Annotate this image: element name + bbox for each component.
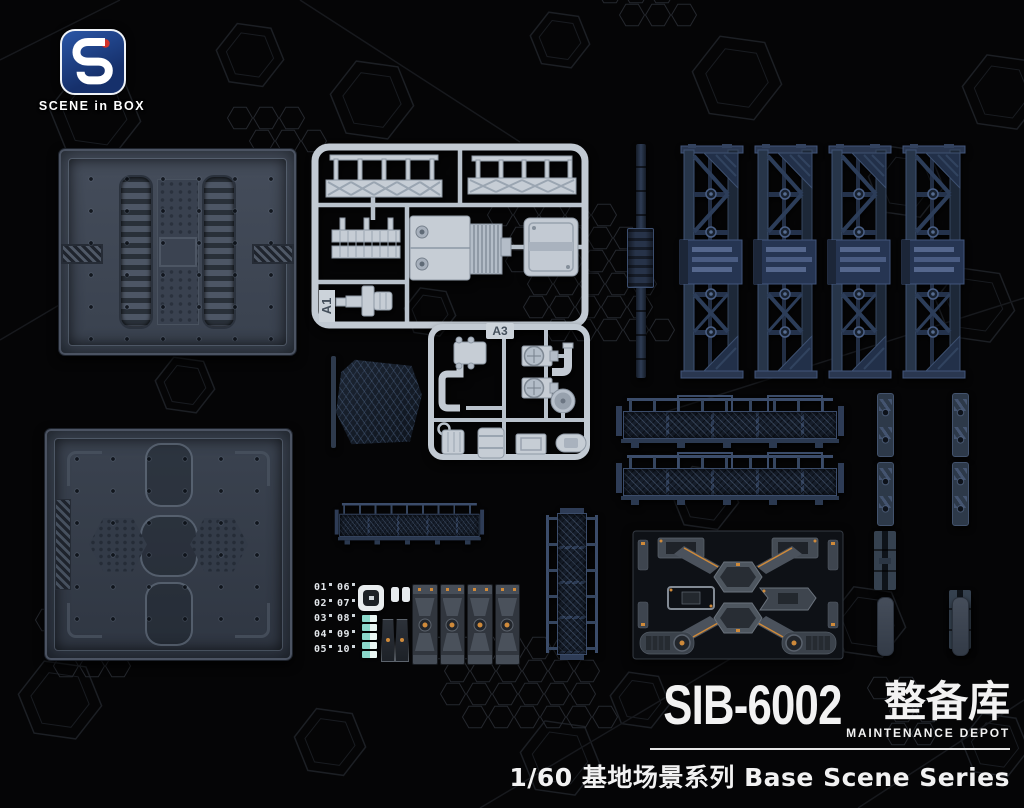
decal-chip	[329, 630, 332, 633]
model-name-wrap: 整备库 MAINTENANCE DEPOT	[846, 680, 1010, 740]
decal-number-column-left: 01 02 03 04 05	[314, 582, 332, 656]
catwalk-bracket	[677, 395, 733, 411]
part-pipe-manifold	[442, 337, 486, 408]
brand-logo-icon	[62, 31, 124, 93]
catwalk-endcap	[560, 508, 584, 513]
decal-number: 10	[337, 644, 350, 655]
decal-mech-panel	[467, 584, 493, 665]
catwalk-bracket	[677, 452, 733, 468]
truss-tower-2	[752, 144, 820, 380]
decal-number: 01	[314, 582, 327, 593]
decal-number: 02	[314, 598, 327, 609]
rubber-pad	[952, 597, 969, 656]
part-kettle	[439, 424, 465, 455]
mounting-strip	[952, 393, 969, 457]
h-connector	[874, 531, 896, 590]
brand-logo	[60, 29, 126, 95]
decal-chip	[352, 599, 355, 602]
base-plate-b	[44, 428, 293, 661]
mounting-strip	[877, 462, 894, 526]
catwalk-bracket	[767, 452, 823, 468]
logo-sib-monogram	[77, 42, 109, 80]
decal-hatch-square	[358, 585, 384, 611]
catwalk-endcap	[838, 463, 844, 493]
catwalk-endcap	[838, 406, 844, 436]
decal-number: 09	[337, 629, 350, 640]
part-machine-block	[410, 216, 511, 280]
divider-line	[650, 748, 1010, 750]
sprue-a1-label: A1	[319, 298, 334, 315]
part-box	[516, 434, 546, 454]
truss-tower-4	[900, 144, 968, 380]
decal-teal-strip	[362, 651, 377, 658]
part-spindle	[336, 286, 392, 316]
decal-number: 06	[337, 582, 350, 593]
catwalk-endcap	[480, 510, 484, 535]
decal-number: 05	[314, 644, 327, 655]
catwalk-endcap	[560, 655, 584, 660]
pillar-mid-block	[627, 228, 654, 288]
decal-door-panel	[381, 619, 395, 662]
mounting-strip	[952, 462, 969, 526]
decal-orange-orb	[418, 618, 431, 631]
painted-floor-panel	[632, 530, 844, 660]
catwalk-feet	[631, 443, 829, 448]
decal-number-column-right: 06 07 08 09 10	[337, 582, 355, 656]
part-railing-long-1	[326, 155, 442, 197]
catwalk-long-1	[621, 398, 839, 450]
sprue-a1: A1	[310, 142, 590, 330]
sprue-a3-label: A3	[492, 324, 508, 338]
decal-chip	[352, 583, 355, 586]
catwalk-endcap	[616, 406, 622, 436]
series-line: 1/60 基地场景系列 Base Scene Series	[509, 758, 1010, 794]
decal-mech-panel	[495, 584, 521, 665]
catwalk-long-2	[621, 455, 839, 507]
catwalk-endcap	[335, 510, 339, 535]
catwalk-mesh-deck	[623, 468, 837, 496]
catwalk-endcap	[616, 463, 622, 493]
mounting-strip	[877, 393, 894, 457]
decal-teal-strip	[362, 633, 377, 640]
decal-number: 03	[314, 613, 327, 624]
truss-tower-1	[678, 144, 746, 380]
model-name-en: MAINTENANCE DEPOT	[846, 726, 1010, 740]
model-number: SIB-6002	[664, 680, 842, 729]
floor-right-bracket	[760, 588, 816, 610]
part-slat-rack	[332, 218, 400, 258]
title-block: SIB-6002 整备库 MAINTENANCE DEPOT 1/60 基地场景…	[509, 680, 1010, 794]
catwalk-posts	[343, 505, 475, 514]
decal-chip	[329, 614, 332, 617]
catwalk-feet	[345, 540, 475, 544]
catwalk-posts	[586, 517, 596, 651]
part-fan	[551, 389, 575, 420]
part-panel	[524, 218, 578, 276]
decal-sheet: 01 02 03 04 05 06 07 08 09 10	[310, 572, 522, 669]
catwalk-short	[338, 503, 481, 546]
title-main-row: SIB-6002 整备库 MAINTENANCE DEPOT	[509, 680, 1010, 740]
catwalk-bracket	[767, 395, 823, 411]
catwalk-mesh-deck	[557, 513, 587, 655]
part-capsule-box	[556, 434, 586, 452]
decal-chip	[329, 599, 332, 602]
decal-orange-orb	[446, 618, 459, 631]
decal-mech-panel	[440, 584, 466, 665]
decal-teal-strip	[362, 642, 377, 649]
decal-small-rect	[402, 587, 410, 602]
catwalk-mesh-deck	[339, 514, 479, 537]
decal-chip	[352, 630, 355, 633]
catwalk-feet	[631, 500, 829, 505]
decal-mech-group	[412, 584, 520, 665]
part-barrel	[478, 428, 504, 458]
decal-number: 04	[314, 629, 327, 640]
decal-number: 07	[337, 598, 350, 609]
brand-name: SCENE in BOX	[37, 99, 147, 113]
product-photo-canvas: SCENE in BOX	[0, 0, 1024, 808]
sprue-a3: A3	[426, 322, 592, 464]
decal-number: 08	[337, 613, 350, 624]
truss-tower-3	[826, 144, 894, 380]
decal-chip	[329, 645, 332, 648]
catwalk-vertical	[546, 511, 598, 657]
model-name-cn: 整备库	[884, 680, 1010, 724]
decal-chip	[352, 614, 355, 617]
decal-small-rect	[391, 587, 399, 602]
support-pillar	[627, 144, 654, 378]
catwalk-mesh-deck	[623, 411, 837, 439]
decal-chip	[352, 645, 355, 648]
mesh-panel-rail	[331, 356, 336, 448]
part-railing-long-2	[468, 156, 576, 194]
decal-chip	[329, 583, 332, 586]
rivet-grid	[73, 163, 282, 341]
mesh-panel	[336, 358, 422, 446]
decal-orange-orb	[501, 618, 514, 631]
rubber-pad	[877, 597, 894, 656]
decal-door-panel	[395, 619, 409, 662]
decal-teal-strip	[362, 624, 377, 631]
base-plate-a	[58, 148, 297, 356]
rivet-grid	[59, 443, 278, 646]
decal-mech-panel	[412, 584, 438, 665]
decal-teal-strip	[362, 615, 377, 622]
decal-orange-orb	[473, 618, 486, 631]
